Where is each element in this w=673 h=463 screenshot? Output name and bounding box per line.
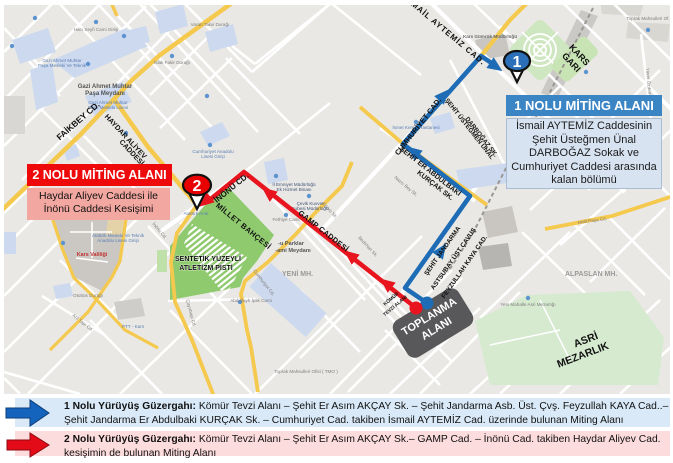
svg-text:Anadolu Lisesi Girişi: Anadolu Lisesi Girişi (97, 238, 139, 243)
svg-text:Yeni Mahalle Asri Mezarlığı: Yeni Mahalle Asri Mezarlığı (500, 302, 555, 307)
svg-text:Atatürk Anıtı: Atatürk Anıtı (183, 211, 208, 216)
svg-text:Otobüs Durağı: Otobüs Durağı (73, 293, 103, 298)
svg-text:Fethiye Cami: Fethiye Cami (272, 217, 299, 222)
svg-text:PTT - Kars: PTT - Kars (122, 324, 145, 329)
svg-text:Lisesi Girişi: Lisesi Girişi (201, 154, 224, 159)
svg-text:İslak Fakir Durağı: İslak Fakir Durağı (154, 59, 190, 65)
svg-text:SENTETİK YÜZEYLİ: SENTETİK YÜZEYLİ (175, 254, 241, 263)
svg-text:2: 2 (193, 178, 202, 195)
svg-text:Varan Takvi Durağı: Varan Takvi Durağı (191, 22, 230, 27)
svg-text:Paşa Mesleki Ve Teknik: Paşa Mesleki Ve Teknik (38, 63, 87, 68)
svg-text:ATLETİZM PİSTİ: ATLETİZM PİSTİ (179, 264, 233, 272)
svg-text:Toprak Mahsulleri Ofisi ( TMO: Toprak Mahsulleri Ofisi ( TMO ) (274, 369, 338, 374)
svg-text:Kars Valiliği: Kars Valiliği (77, 252, 108, 258)
svg-text:Paşa Meydanı: Paşa Meydanı (85, 91, 125, 97)
svg-text:-u Parklar: -u Parklar (278, 241, 305, 247)
svg-text:Abdullayh İplik Cami: Abdullayh İplik Cami (230, 297, 272, 303)
svg-text:Kars Gümrük Müdürlüğü: Kars Gümrük Müdürlüğü (463, 34, 517, 39)
svg-text:Gazi Ahmet Muhtar: Gazi Ahmet Muhtar (78, 84, 133, 90)
svg-text:1: 1 (513, 54, 522, 71)
svg-text:Hacı Seyfi Cami Girişi: Hacı Seyfi Cami Girişi (74, 27, 119, 32)
svg-text:ALPASLAN MH.: ALPASLAN MH. (565, 271, 617, 278)
svg-text:Toprak Mahsulleri Of.: Toprak Mahsulleri Of. (626, 16, 669, 21)
svg-text:YENİ MH.: YENİ MH. (282, 270, 313, 278)
svg-text:Ek Hizmet Binası: Ek Hizmet Binası (277, 187, 312, 192)
svg-text:-ami Meydanı: -ami Meydanı (275, 248, 311, 254)
